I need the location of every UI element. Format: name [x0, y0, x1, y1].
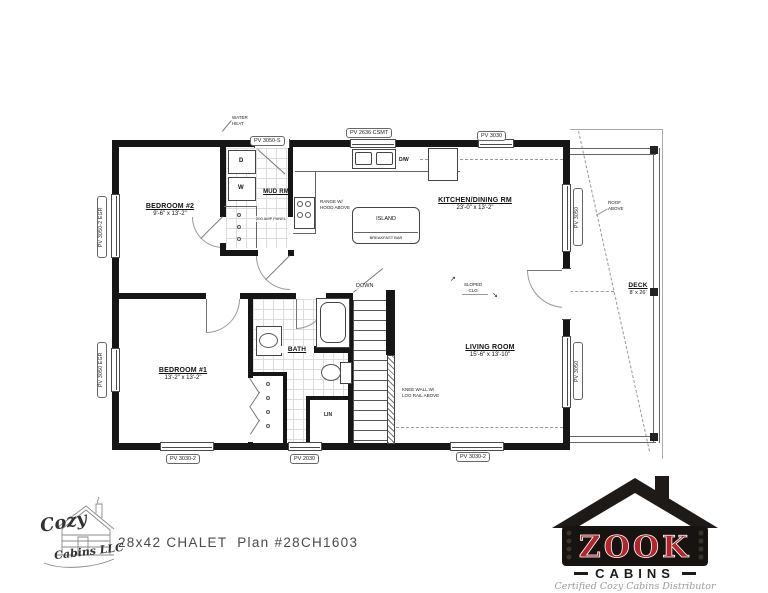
linen-label: LIN	[324, 413, 332, 419]
closet-rod-hook	[266, 410, 270, 414]
deck-rail-bottom	[570, 436, 656, 443]
window-living-right	[562, 336, 571, 408]
window-sash-line	[567, 186, 568, 250]
water-heater-note: WATER HEAT	[232, 115, 248, 126]
wall-linen-left	[306, 396, 310, 448]
bed1-closet-floor	[253, 372, 287, 448]
bed1-door-leaf	[206, 299, 207, 332]
zook-tagline: Certified Cozy Cabins Distributor	[555, 581, 717, 592]
bed1-door-swing	[206, 299, 240, 333]
window-sash-line	[567, 338, 568, 406]
counter-left-edge	[315, 171, 316, 233]
slope-arrow-up-icon: ↗	[450, 277, 456, 283]
breakfast-bar-label: BREAKFAST BAR	[352, 235, 420, 240]
dishwasher-label: D/W	[399, 157, 409, 163]
island-label: ISLAND	[352, 216, 420, 222]
zook-roof-icon	[552, 478, 718, 528]
deck-rail-top	[570, 148, 656, 155]
window-sash-line	[480, 144, 512, 145]
deck-door-swing	[527, 270, 565, 308]
tub-inner	[320, 302, 346, 343]
note-line: HEAT	[232, 121, 248, 127]
bath-label: BATH	[280, 346, 314, 353]
window-sash-line	[116, 350, 117, 390]
deck-post	[650, 146, 658, 154]
room-name: BEDROOM #1	[138, 367, 228, 374]
kitchen-label: KITCHEN/DINING RM 23'-0" x 13'-2"	[410, 197, 540, 211]
counter-left-bottom	[293, 233, 316, 234]
bedroom2-label: BEDROOM #2 9'-6" x 13'-2"	[128, 203, 212, 217]
sink-bowl	[376, 152, 393, 165]
cabins-dash-left	[574, 572, 588, 575]
range-burner	[297, 212, 303, 218]
window-sash-line	[290, 447, 320, 448]
eave-line-right	[662, 129, 663, 459]
room-name: DECK	[614, 282, 662, 289]
range-burner	[297, 201, 303, 207]
slope-arrow-down-icon: ↘	[492, 293, 498, 299]
room-dims: 15'-6" x 13'-10"	[438, 352, 542, 358]
room-name: BEDROOM #2	[128, 203, 212, 210]
deck-door-opening	[562, 268, 571, 320]
roof-note-leader	[596, 209, 608, 216]
floor-plan: PV 3050-S PV 2636 CSMT PV 3030 PV 3030-2…	[0, 0, 768, 500]
zook-cabins-word: CABINS	[595, 566, 675, 581]
deck-post	[650, 433, 658, 441]
room-name: BATH	[280, 346, 314, 353]
island-divider	[354, 232, 418, 233]
loft-line-lower	[396, 427, 563, 428]
bath-door-leaf	[296, 299, 297, 329]
mudroom-label: MUD RM	[246, 189, 306, 195]
toilet-tank	[340, 362, 352, 384]
closet-rod-hook	[237, 213, 241, 217]
window-tag-top-right: PV 3030	[477, 131, 506, 141]
window-tag-left-top: PV 3050-2 EGR	[97, 196, 107, 258]
sink-bowl	[355, 152, 372, 165]
coat-closet-top	[224, 206, 257, 207]
page: { "title_block": { "plan_title": "28x42 …	[0, 0, 768, 593]
room-dims: 8' x 26'	[614, 290, 662, 296]
knee-wall	[387, 355, 395, 444]
wall-mud-bottom-a	[220, 250, 258, 256]
toilet-bowl	[321, 364, 341, 381]
window-tag-left-bottom: PV 3050 EGR	[97, 342, 107, 398]
closet-rod-hook	[237, 225, 241, 229]
range-note: RANGE W/ HOOD ABOVE	[320, 199, 350, 210]
window-sash-line	[162, 447, 212, 448]
linen-closet-floor	[306, 396, 353, 448]
wall-bed1-right-a	[248, 293, 253, 378]
note-line: SLOPED	[464, 282, 482, 288]
bedroom1-label: BEDROOM #1 13'-2" x 13'-2"	[138, 367, 228, 381]
wall-stairs-right	[386, 290, 395, 355]
window-tag-right-bottom: PV 3050	[573, 342, 583, 400]
vanity-sink	[259, 333, 278, 348]
range-burner	[305, 212, 311, 218]
note-line: HOOD ABOVE	[320, 205, 350, 211]
stair-treads	[353, 300, 387, 444]
eave-line-top	[570, 129, 663, 130]
ceiling-slope-note: SLOPED CLG	[464, 282, 482, 293]
window-living-bottom	[450, 442, 504, 451]
room-name: KITCHEN/DINING RM	[410, 197, 540, 204]
deck-dim-line	[570, 291, 614, 292]
wall-bed1-right-b	[248, 442, 253, 448]
zook-wordmark: ZOOK	[579, 530, 691, 565]
wall-linen-top	[306, 396, 353, 400]
window-kitchen-sink	[350, 139, 396, 148]
cabins-dash-right	[682, 572, 696, 575]
dryer-label: D	[239, 158, 243, 164]
window-bed2-left	[111, 194, 120, 258]
closet-rod-hook	[266, 424, 270, 428]
note-line: WATER	[232, 115, 248, 121]
refrigerator	[428, 148, 458, 181]
room-name: LIVING ROOM	[438, 344, 542, 351]
window-tag-top-mid: PV 2636 CSMT	[346, 128, 392, 138]
slope-note-underline	[462, 294, 488, 295]
washer-label: W	[238, 185, 244, 191]
note-line: ABOVE	[608, 206, 624, 212]
room-name: MUD RM	[246, 189, 306, 195]
room-dims: 13'-2" x 13'-2"	[138, 375, 228, 381]
deck-door-leaf	[527, 270, 565, 271]
window-tag-bottom-mid: PV 2030	[290, 454, 319, 464]
plan-title: 28x42 CHALET Plan #28CH1603	[118, 535, 358, 550]
window-bath	[288, 442, 322, 451]
wall-closet1-right	[283, 372, 287, 448]
window-tag-top-left: PV 3050-S	[250, 136, 285, 146]
room-dims: 23'-0" x 13'-2"	[410, 205, 540, 211]
roof-above-note: ROOF ABOVE	[608, 200, 624, 211]
range-burner	[305, 201, 311, 207]
window-sash-line	[452, 447, 502, 448]
window-bed1-left	[111, 348, 120, 392]
amp-panel-note: 200 AMP PANEL	[256, 216, 286, 222]
wall-mud-kitchen	[288, 147, 293, 217]
note-line: CLG	[464, 288, 482, 294]
closet-rod-hook	[266, 382, 270, 386]
window-bed1	[160, 442, 214, 451]
window-tag-right-top: PV 3050	[573, 188, 583, 246]
window-dining-right	[562, 184, 571, 252]
closet-rod-hook	[237, 237, 241, 241]
note-line: KNEE WALL W/	[402, 387, 439, 393]
wall-bedrooms-a	[112, 293, 206, 299]
water-heater-leader	[222, 120, 232, 131]
coat-closet-side	[256, 206, 257, 248]
wall-bath-top-a	[253, 293, 296, 299]
knee-wall-note: KNEE WALL W/ LOG RAIL ABOVE	[402, 387, 439, 398]
stairs-down-label: DOWN	[356, 284, 373, 290]
window-sash-line	[116, 196, 117, 256]
closet-rod-hook	[266, 396, 270, 400]
deck-label: DECK 8' x 26'	[614, 282, 662, 296]
window-tag-bottom-right: PV 3030-2	[456, 452, 490, 462]
living-label: LIVING ROOM 15'-6" x 13'-10"	[438, 344, 542, 358]
note-line: LOG RAIL ABOVE	[402, 393, 439, 399]
window-sash-line	[352, 144, 394, 145]
wall-closet1-top	[253, 372, 287, 376]
zook-cabins-logo: ZOOK CABINS Certified Cozy Cabins Distri…	[552, 472, 718, 592]
room-dims: 9'-6" x 13'-2"	[128, 211, 212, 217]
window-tag-bottom-left: PV 3030-2	[166, 454, 200, 464]
